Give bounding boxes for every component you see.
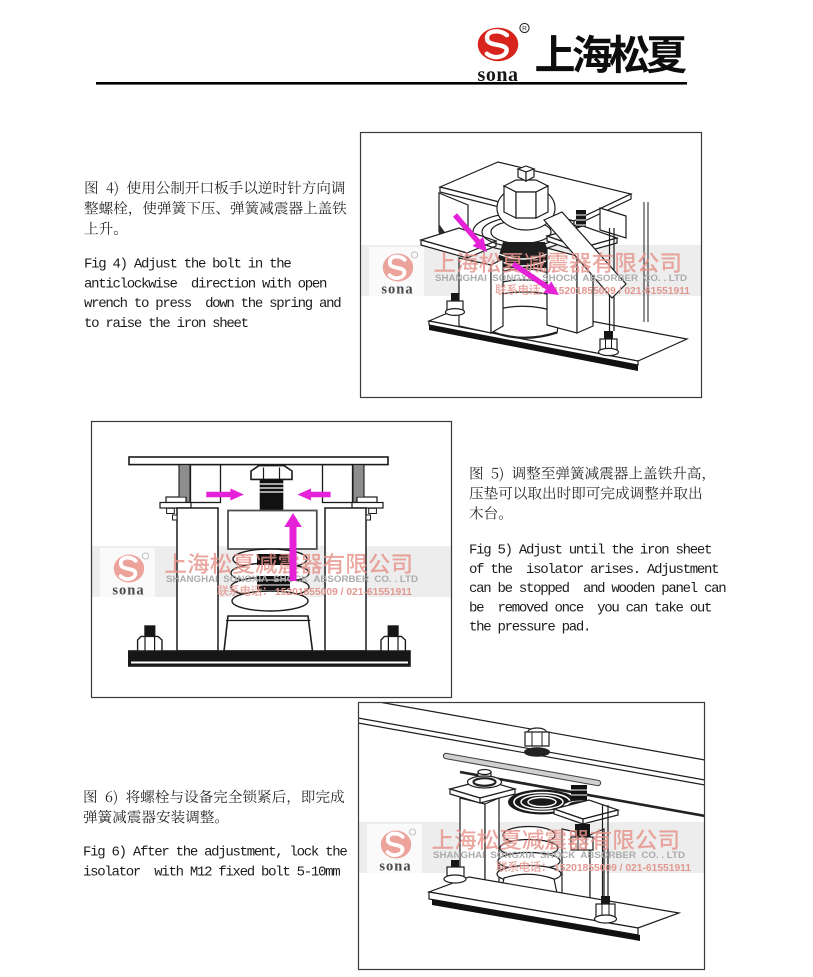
svg-text:SHANGHAI SONGXIA SHOCK ABSO: SHANGHAI SONGXIA SHOCK ABSORBER CO. . LT…	[433, 850, 685, 860]
svg-text:15201855009 / 021-61551911: 15201855009 / 021-61551911	[553, 286, 690, 297]
svg-text:anticlockwise direction with: anticlockwise direction with open	[84, 276, 327, 292]
svg-text:wrench to press down the spri: wrench to press down the spring and	[84, 296, 341, 312]
svg-text:15201855009 / 021-61551911: 15201855009 / 021-61551911	[275, 587, 412, 598]
svg-text:sona: sona	[379, 859, 411, 875]
svg-text:isolator with M12 fixed bolt: isolator with M12 fixed bolt 5-10mm	[83, 864, 340, 880]
svg-text:of the isolator arises. Adjus: of the isolator arises. Adjustment	[469, 562, 718, 578]
svg-text:sona: sona	[112, 583, 144, 599]
svg-text:the pressure pad.: the pressure pad.	[469, 620, 590, 636]
svg-text:sona: sona	[381, 282, 413, 298]
svg-text:Fig 4) Adjust the bolt in the: Fig 4) Adjust the bolt in the	[84, 257, 291, 273]
svg-text:SHANGHAI SONGXIA SHOCK ABSO: SHANGHAI SONGXIA SHOCK ABSORBER CO. . LT…	[435, 273, 687, 283]
svg-text:R: R	[522, 26, 527, 33]
svg-text:Fig 5) Adjust until the iron s: Fig 5) Adjust until the iron sheet	[469, 543, 711, 559]
svg-text:be removed once you can take: be removed once you can take out	[469, 600, 711, 616]
svg-text:15201855009 / 021-61551911: 15201855009 / 021-61551911	[554, 863, 691, 874]
svg-text:to raise the iron sheet: to raise the iron sheet	[84, 316, 248, 332]
svg-text:Fig 6) After the adjustment, l: Fig 6) After the adjustment, lock the	[83, 845, 347, 861]
svg-text:can be stopped and wooden pan: can be stopped and wooden panel can	[469, 581, 726, 597]
